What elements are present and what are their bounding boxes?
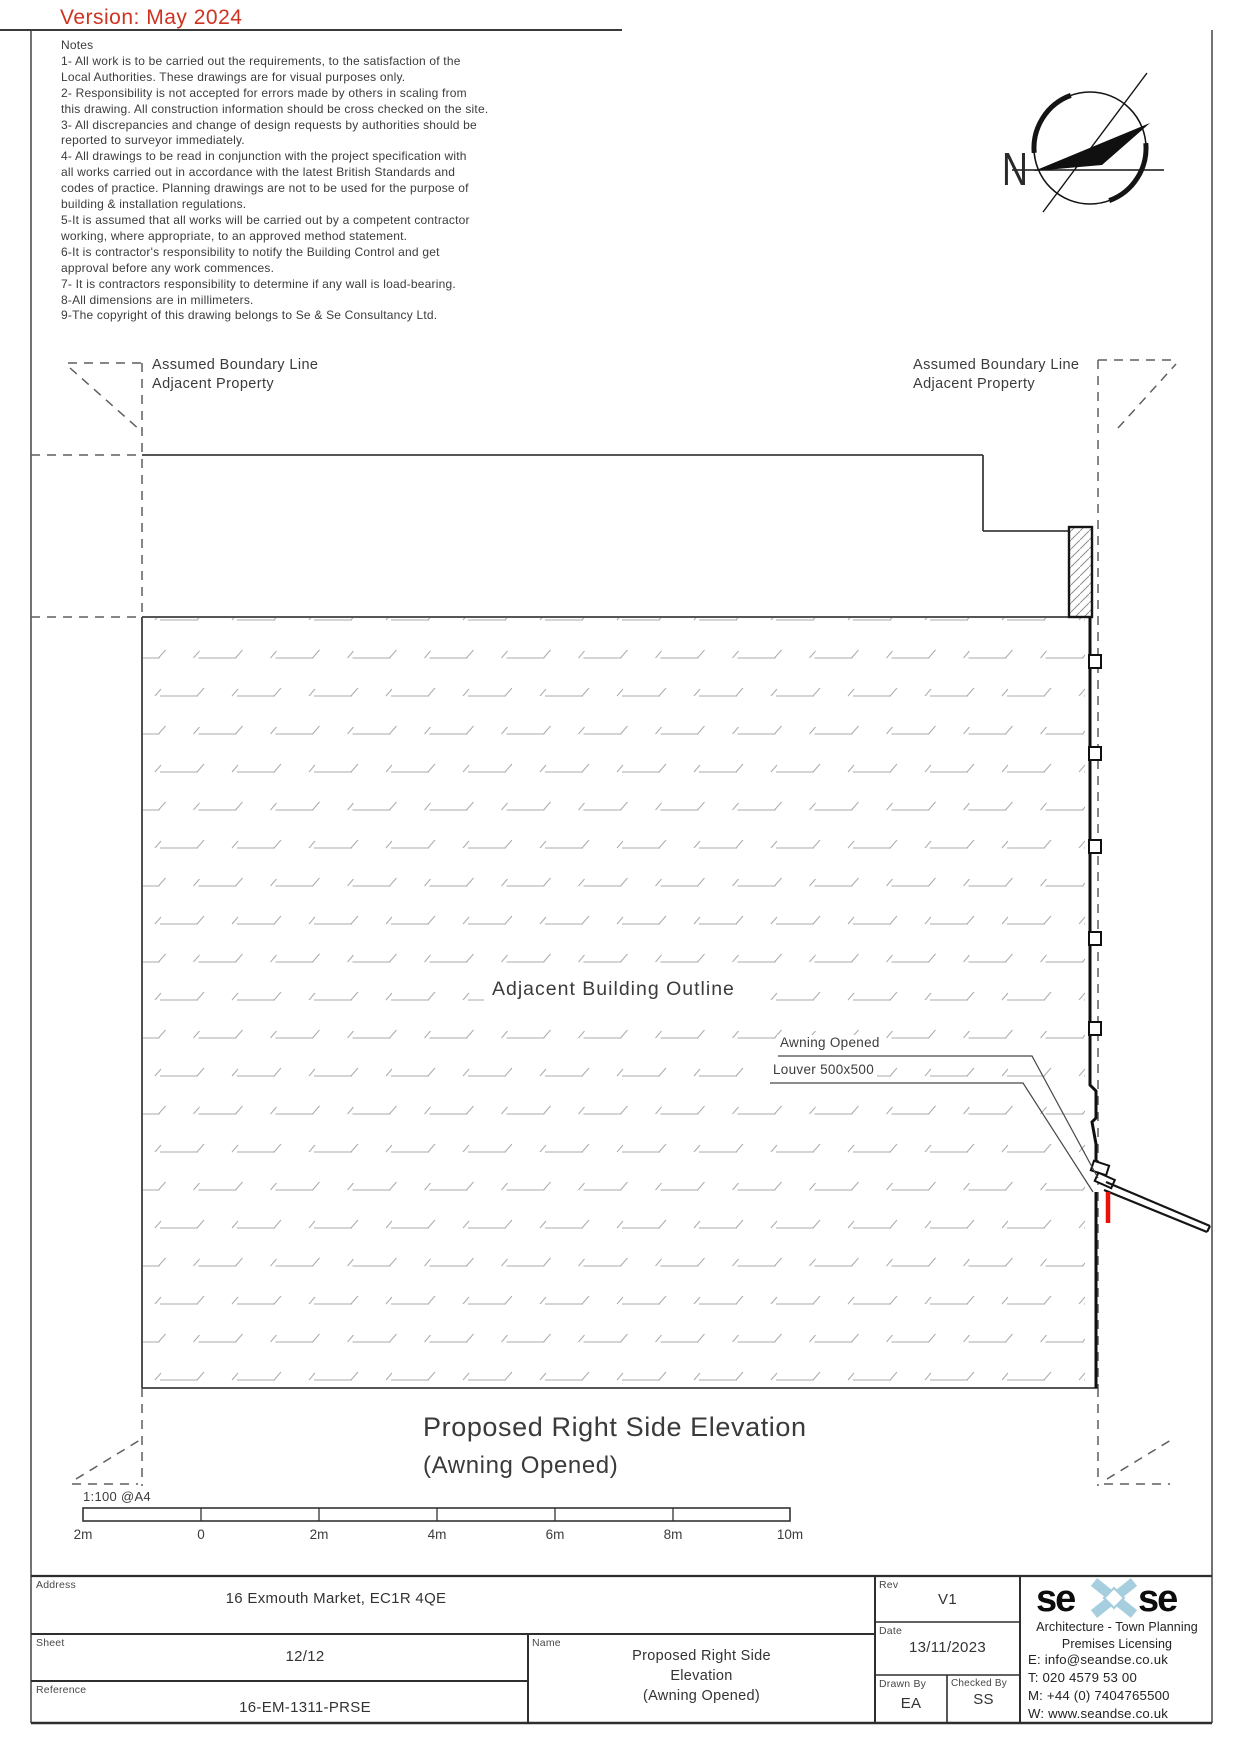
firm-website: W: www.seandse.co.uk (1028, 1706, 1168, 1721)
note-line: 5-It is assumed that all works will be c… (61, 213, 488, 229)
note-line: Local Authorities. These drawings are fo… (61, 70, 488, 86)
scale-tick-label: 2m (310, 1527, 329, 1542)
version-banner: Version: May 2024 (60, 6, 242, 30)
architectural-drawing-page: Version: May 2024 Notes 1- All work is t… (0, 0, 1240, 1755)
scale-tick-label: 10m (777, 1527, 803, 1542)
drawing-title-line1: Proposed Right Side Elevation (423, 1412, 807, 1443)
note-line: 9-The copyright of this drawing belongs … (61, 308, 488, 324)
boundary-label-right: Assumed Boundary Line Adjacent Property (913, 356, 1079, 393)
firm-tagline2: Premises Licensing (1022, 1637, 1212, 1651)
note-line: building & installation regulations. (61, 197, 488, 213)
parapet-strip (1069, 527, 1092, 617)
checked-by-value: SS (947, 1691, 1020, 1708)
boundary-right-line1: Assumed Boundary Line (913, 356, 1079, 375)
scale-tick-label: 0 (197, 1527, 205, 1542)
firm-phone: T: 020 4579 53 00 (1028, 1670, 1137, 1685)
name-value: Proposed Right SideElevation(Awning Open… (528, 1646, 875, 1706)
drawn-by-value: EA (875, 1695, 947, 1712)
logo-se-right: se (1138, 1578, 1177, 1619)
note-line: 7- It is contractors responsibility to d… (61, 277, 488, 293)
address-value: 16 Exmouth Market, EC1R 4QE (31, 1590, 641, 1607)
note-line: working, where appropriate, to an approv… (61, 229, 488, 245)
reference-value: 16-EM-1311-PRSE (31, 1699, 579, 1716)
adjacent-building-label: Adjacent Building Outline (484, 978, 743, 1001)
building-hatch-fill (143, 618, 1085, 1387)
date-label: Date (879, 1625, 902, 1637)
scale-bar (83, 1508, 790, 1521)
note-line: 1- All work is to be carried out the req… (61, 54, 488, 70)
notes-title: Notes (61, 38, 488, 54)
scale-label: 1:100 @A4 (83, 1489, 151, 1504)
note-line: 3- All discrepancies and change of desig… (61, 118, 488, 134)
notes-block: Notes 1- All work is to be carried out t… (61, 38, 488, 324)
north-label: N (1002, 142, 1028, 196)
note-line: 8-All dimensions are in millimeters. (61, 293, 488, 309)
note-line: 6-It is contractor's responsibility to n… (61, 245, 488, 261)
right-wall-profile (1089, 617, 1101, 1388)
checked-by-label: Checked By (951, 1678, 1007, 1689)
boundary-left-line1: Assumed Boundary Line (152, 356, 318, 375)
note-line: this drawing. All construction informati… (61, 102, 488, 118)
boundary-left-line2: Adjacent Property (152, 375, 318, 394)
note-line: approval before any work commences. (61, 261, 488, 277)
boundary-dashed-lines (31, 360, 1178, 1486)
rev-label: Rev (879, 1579, 898, 1591)
reference-label: Reference (36, 1684, 86, 1696)
date-value: 13/11/2023 (875, 1639, 1020, 1656)
firm-mobile: M: +44 (0) 7404765500 (1028, 1688, 1170, 1703)
drawing-title-line2: (Awning Opened) (423, 1452, 618, 1480)
scale-tick-label: 4m (428, 1527, 447, 1542)
louver-label: Louver 500x500 (770, 1062, 877, 1077)
logo-se-left: se (1036, 1578, 1075, 1619)
boundary-right-line2: Adjacent Property (913, 375, 1079, 394)
boundary-label-left: Assumed Boundary Line Adjacent Property (152, 356, 318, 393)
note-line: all works carried out in accordance with… (61, 165, 488, 181)
sheet-value: 12/12 (31, 1648, 579, 1665)
logo-ampersand-x-icon (1094, 1582, 1134, 1614)
compass-rose (1012, 73, 1164, 212)
sese-logo: se se (1034, 1577, 1204, 1619)
scale-tick-label: 6m (546, 1527, 565, 1542)
scale-tick-label: 2m (74, 1527, 93, 1542)
firm-tagline1: Architecture - Town Planning (1022, 1620, 1212, 1634)
note-line: 2- Responsibility is not accepted for er… (61, 86, 488, 102)
note-line: reported to surveyor immediately. (61, 133, 488, 149)
name-value-line: (Awning Opened) (528, 1686, 875, 1706)
note-line: codes of practice. Planning drawings are… (61, 181, 488, 197)
awning-arm (1091, 1161, 1210, 1232)
scale-tick-label: 8m (664, 1527, 683, 1542)
drawn-by-label: Drawn By (879, 1678, 926, 1690)
building-outline (142, 455, 1098, 1388)
name-value-line: Elevation (528, 1666, 875, 1686)
firm-email: E: info@seandse.co.uk (1028, 1652, 1168, 1667)
rev-value: V1 (875, 1591, 1020, 1608)
name-value-line: Proposed Right Side (528, 1646, 875, 1666)
awning-opened-label: Awning Opened (777, 1035, 883, 1050)
note-line: 4- All drawings to be read in conjunctio… (61, 149, 488, 165)
